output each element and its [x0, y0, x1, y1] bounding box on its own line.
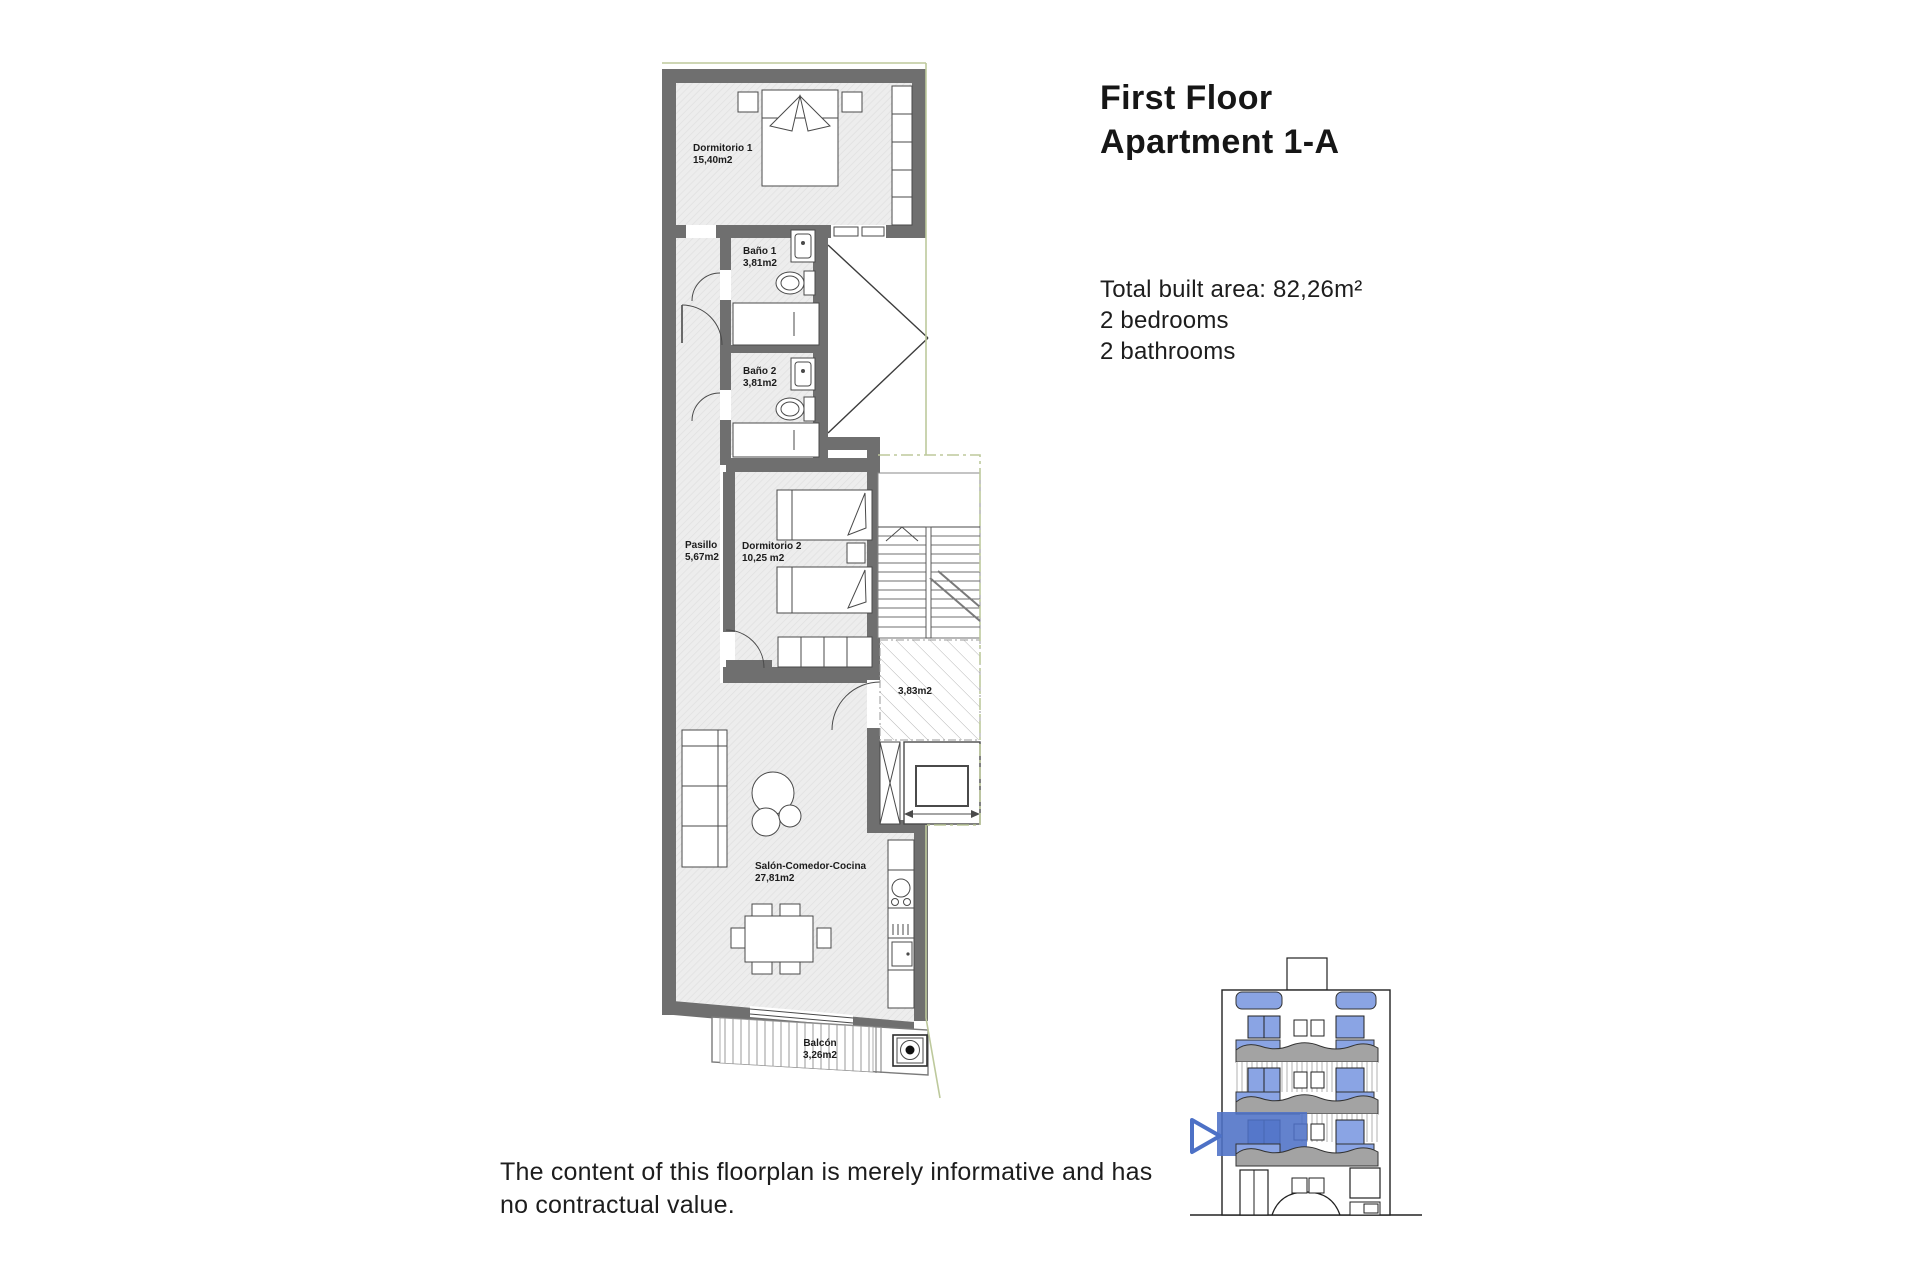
wardrobe: [892, 86, 912, 225]
title-line1: First Floor: [1100, 76, 1339, 120]
label-landing-area: 3,83m2: [898, 686, 932, 698]
building-elevation: [1180, 950, 1430, 1235]
label-pasillo: Pasillo5,67m2: [685, 540, 719, 564]
label-dormitorio2: Dormitorio 210,25 m2: [742, 541, 801, 565]
balcony-slab-1: [1236, 1147, 1378, 1166]
page-title: First Floor Apartment 1-A: [1100, 76, 1339, 164]
total-built-area: Total built area: 82,26m²: [1100, 274, 1362, 305]
page: Dormitorio 115,40m2 Baño 13,81m2 Baño 23…: [0, 0, 1920, 1280]
stairs: [878, 473, 980, 638]
floor-plan: [540, 30, 1010, 1120]
label-salon: Salón-Comedor-Cocina27,81m2: [755, 861, 866, 885]
balcony-slab-3: [1236, 1043, 1378, 1062]
label-balcon: Balcón3,26m2: [785, 1038, 855, 1062]
apartment-details: Total built area: 82,26m² 2 bedrooms 2 b…: [1100, 274, 1362, 367]
bathrooms-count: 2 bathrooms: [1100, 336, 1362, 367]
label-dormitorio1: Dormitorio 115,40m2: [693, 143, 752, 167]
entrance-void: [828, 227, 928, 450]
elevator: [880, 742, 980, 824]
title-line2: Apartment 1-A: [1100, 120, 1339, 164]
floor-2: [1236, 1062, 1378, 1092]
washing-machine-icon: [893, 1035, 927, 1066]
balcony-slab-2: [1236, 1095, 1378, 1114]
label-bano2: Baño 23,81m2: [743, 366, 777, 390]
kitchen-counter: [888, 840, 914, 1008]
label-bano1: Baño 13,81m2: [743, 246, 777, 270]
floor-pointer-icon: [1192, 1120, 1220, 1152]
bedrooms-count: 2 bedrooms: [1100, 305, 1362, 336]
sofa: [682, 730, 727, 867]
roof-bulkhead: [1287, 958, 1327, 990]
built-in-closet: [778, 637, 872, 667]
disclaimer-text: The content of this floorplan is merely …: [500, 1156, 1160, 1222]
dormitorio2-furniture: [777, 490, 872, 667]
